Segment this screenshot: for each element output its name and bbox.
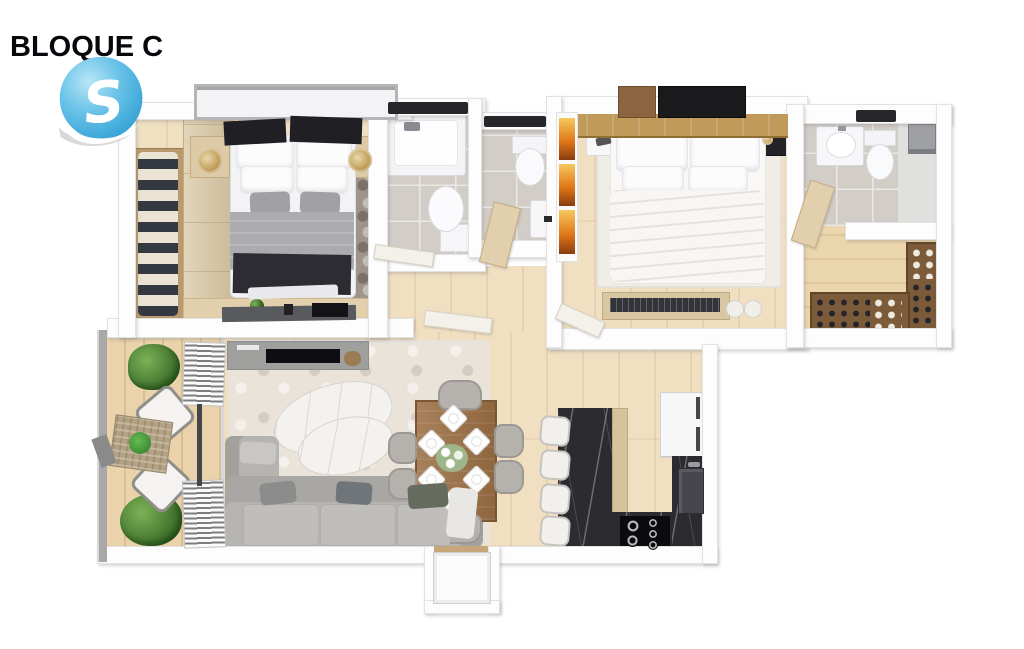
dining-chair-right-2 (494, 460, 524, 494)
shoes-dark (910, 282, 936, 328)
burner (648, 540, 658, 550)
bar-stool (539, 483, 572, 516)
headboard-shelf-1 (223, 118, 286, 145)
dining-chair-left-1 (388, 432, 417, 464)
brand-logo: S (55, 52, 149, 150)
bar-stool (539, 515, 572, 548)
kitchen-sink (678, 468, 704, 514)
burner (626, 534, 639, 547)
wall-kitchen-right (702, 344, 718, 564)
island-cabinet-face (612, 408, 628, 516)
sofa-pillow (335, 481, 372, 505)
sofa-white-throw (445, 487, 478, 540)
shower-screen-bath-guest (484, 116, 546, 127)
wall-art-orange-2 (557, 162, 577, 208)
sneakers-white (872, 297, 902, 328)
wall-art-orange-1 (557, 116, 577, 162)
sofa-chaise-pillow (239, 441, 276, 465)
wall-living-bottom-left (97, 546, 430, 564)
front-door (433, 552, 491, 604)
sofa-seat-cushion (320, 504, 396, 546)
toilet-guest-bowl (515, 148, 545, 186)
bar-stool (539, 415, 572, 448)
wall-bedroom2-right (368, 98, 388, 338)
pouf (726, 300, 744, 318)
burner (648, 529, 658, 539)
dining-chair-top (438, 380, 482, 410)
hanging-clothes (138, 152, 178, 316)
wall-art-orange-3 (557, 208, 577, 256)
shelf-wood-master (618, 86, 656, 118)
pillow (240, 166, 294, 194)
bathtub-faucet (404, 122, 420, 131)
washbasin-faucet-ensuite (838, 126, 846, 131)
soundbar (237, 345, 259, 350)
shelf-black-ensuite (856, 110, 896, 122)
wall-bath-divider (468, 98, 482, 258)
floorplan-render: BLOQUE C S (0, 0, 1024, 649)
sofa-pillow (259, 480, 297, 506)
burner (648, 518, 658, 528)
shelf-black-master (658, 86, 746, 118)
logo-letter: S (80, 69, 127, 138)
vertical-blinds-bottom (182, 479, 226, 548)
headboard-shelf-2 (290, 116, 363, 144)
tv-living (266, 349, 340, 363)
balcony-door-frame (197, 404, 202, 486)
shoes-dark (814, 297, 870, 328)
wall-ensuite-right (936, 104, 952, 348)
wall-living-bottom-right (494, 546, 717, 564)
pouf (744, 300, 762, 318)
table-lamp-right (348, 148, 372, 172)
refrigerator-handle (696, 397, 700, 419)
sofa-seat-cushion (243, 504, 319, 546)
burner (626, 519, 640, 533)
dining-chair-right-1 (494, 424, 524, 458)
window-bedroom2 (194, 84, 398, 120)
washbasin-guest-faucet (544, 216, 552, 222)
pillow (296, 166, 348, 194)
shower-screen-bath-main (388, 102, 468, 114)
bar-stool (539, 449, 572, 482)
kitchen-faucet (688, 462, 700, 467)
bench-mat (610, 298, 720, 312)
toilet-main-bowl (428, 186, 464, 232)
wall-closet-divider (845, 222, 950, 240)
toilet-ensuite-bowl (866, 144, 894, 180)
washbasin-bowl-ensuite (826, 132, 856, 158)
sofa-seat-cushion (397, 504, 451, 546)
wall-closet-bottom (786, 328, 952, 348)
console-decor-plant (344, 351, 361, 366)
table-lamp-left (197, 148, 222, 173)
vertical-blinds-top (182, 341, 226, 406)
refrigerator-handle (696, 427, 700, 451)
table-plant (129, 432, 151, 454)
floral-centerpiece (436, 444, 468, 472)
sneakers-white (910, 247, 936, 279)
shelf-speaker (284, 304, 293, 315)
bed-master-duvet (610, 190, 764, 282)
sofa-pillow (407, 483, 449, 510)
tv-bedroom2 (312, 303, 348, 317)
